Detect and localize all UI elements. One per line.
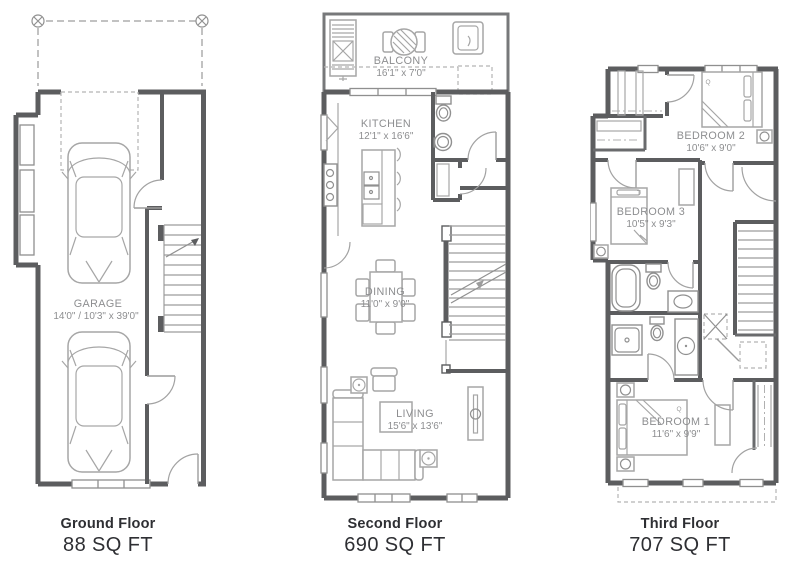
bed-queen: Q	[702, 72, 762, 127]
nightstand	[594, 245, 608, 258]
toilet-icon	[650, 317, 664, 341]
deck-outline-dashed	[618, 487, 776, 502]
bed-size-tag: T	[637, 190, 641, 197]
armchair	[371, 368, 397, 391]
closet-under-stairs	[717, 339, 766, 368]
sink-icon	[434, 134, 452, 151]
floor-plan-ground: GARAGE 14'0" / 10'3" x 39'0"	[8, 10, 258, 510]
floor-label-ground: Ground Floor 88 SQ FT	[8, 516, 208, 557]
shower-icon	[612, 325, 642, 355]
room-dims: 12'1" x 16'6"	[359, 131, 414, 142]
car	[62, 332, 136, 472]
nightstand	[757, 130, 772, 143]
door-arc	[668, 262, 693, 288]
column-marker-icon	[196, 15, 208, 27]
stairs	[738, 231, 774, 330]
lounge-chair	[453, 22, 483, 54]
room-dims: 11'6" x 9'9"	[652, 429, 701, 440]
window	[20, 125, 34, 255]
bed-size-tag: Q	[705, 79, 710, 86]
patio-table	[383, 29, 425, 55]
side-table	[420, 450, 437, 467]
stove-icon	[324, 164, 337, 206]
stair-treads	[738, 231, 774, 330]
room-dims: 10'5" x 9'3"	[626, 219, 676, 230]
room-label: GARAGE	[74, 298, 123, 310]
door-arc	[460, 168, 486, 194]
washer-dryer-icon	[704, 314, 727, 339]
room-dims: 15'6" x 13'6"	[388, 421, 443, 432]
closet-shelf	[597, 121, 641, 140]
stair-direction-arrow	[166, 238, 199, 257]
floor-area: 88 SQ FT	[8, 534, 208, 557]
interior-wall	[147, 92, 162, 484]
room-label: DINING	[365, 286, 405, 298]
door-arc	[134, 180, 162, 208]
kitchen-island	[362, 148, 400, 226]
room-dims: 14'0" / 10'3" x 39'0"	[53, 311, 139, 322]
nightstand	[617, 457, 634, 471]
room-dims: 16'1" x 7'0"	[376, 68, 426, 79]
stairs	[442, 226, 508, 373]
stairs	[158, 225, 201, 332]
side-table	[351, 377, 367, 393]
dresser	[715, 405, 730, 445]
window	[72, 480, 150, 488]
door-arc	[667, 75, 694, 102]
room-label: BEDROOM 2	[677, 130, 745, 142]
sink-vanity-icon	[675, 319, 698, 375]
door-arc	[608, 160, 636, 188]
stair-break-line	[451, 264, 506, 303]
room-label: KITCHEN	[361, 118, 411, 130]
sink-vanity-icon	[668, 291, 698, 312]
door-arc	[732, 448, 757, 473]
closet-rod	[758, 385, 771, 447]
door-arc	[147, 376, 175, 404]
door-arc	[324, 242, 350, 268]
entry-door-arc	[168, 454, 198, 484]
bathtub-icon	[612, 265, 640, 311]
bar-stool-icon	[397, 148, 400, 211]
pantry-shelf	[437, 164, 449, 196]
floor-title: Third Floor	[580, 516, 780, 532]
closet-doors	[612, 71, 662, 115]
room-dims: 10'6" x 9'0"	[686, 143, 736, 154]
floor-title: Ground Floor	[8, 516, 208, 532]
floor-plan-third: Q BEDROOM 2 10'6" x 9'0" T BEDROOM 3 10'…	[590, 55, 794, 507]
door-arc	[742, 167, 776, 201]
closet-bifold-door	[326, 115, 338, 141]
room-label: LIVING	[396, 408, 434, 420]
nightstand	[617, 383, 634, 397]
car	[62, 143, 136, 283]
room-label: BEDROOM 1	[642, 416, 710, 428]
floor-plan-second: BALCONY 16'1" x 7'0"	[318, 8, 514, 505]
wardrobe	[679, 169, 694, 205]
room-label: BEDROOM 3	[617, 206, 685, 218]
bed-size-tag: Q	[676, 406, 681, 413]
bbq-grill-icon	[330, 20, 356, 81]
driveway-outline	[32, 15, 208, 86]
door-arc	[705, 163, 733, 191]
door-arc	[468, 132, 496, 160]
floor-area: 690 SQ FT	[295, 534, 495, 557]
toilet-icon	[436, 96, 451, 121]
floor-title: Second Floor	[295, 516, 495, 532]
room-dims: 11'0" x 9'0"	[361, 299, 410, 310]
room-label: BALCONY	[374, 55, 428, 67]
floor-label-third: Third Floor 707 SQ FT	[580, 516, 780, 557]
floor-area: 707 SQ FT	[580, 534, 780, 557]
tv-console	[468, 387, 483, 440]
column-marker-icon	[32, 15, 44, 27]
door-arc	[648, 354, 674, 380]
toilet-icon	[646, 264, 661, 289]
floor-label-second: Second Floor 690 SQ FT	[295, 516, 495, 557]
